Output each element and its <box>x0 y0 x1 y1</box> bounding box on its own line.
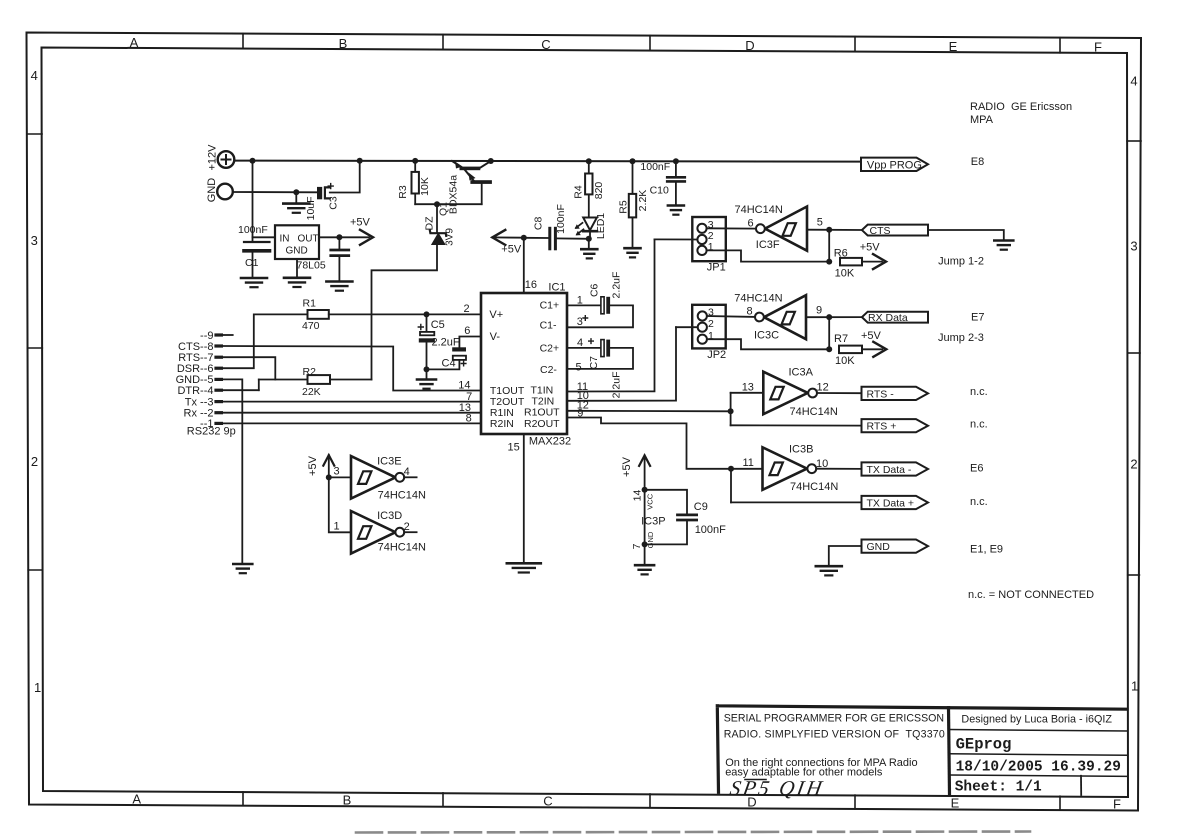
svg-text:IC3F: IC3F <box>756 239 780 251</box>
svg-text:14: 14 <box>458 380 470 392</box>
svg-text:BDX54a: BDX54a <box>448 175 460 214</box>
svg-text:22K: 22K <box>302 386 321 398</box>
svg-text:E6: E6 <box>970 463 983 475</box>
svg-text:74HC14N: 74HC14N <box>790 406 838 418</box>
svg-text:8: 8 <box>747 305 753 317</box>
svg-text:IC3C: IC3C <box>754 330 779 342</box>
svg-text:74HC14N: 74HC14N <box>735 204 783 216</box>
svg-text:C1-: C1- <box>540 320 557 332</box>
svg-text:2: 2 <box>464 303 470 315</box>
svg-text:V-: V- <box>490 331 501 343</box>
svg-text:DZ: DZ <box>424 216 436 231</box>
svg-text:CTS--8: CTS--8 <box>178 341 213 353</box>
svg-text:R4: R4 <box>572 185 584 199</box>
svg-text:C6: C6 <box>589 283 601 297</box>
svg-text:IC3A: IC3A <box>789 367 814 379</box>
svg-text:820: 820 <box>593 182 605 200</box>
svg-text:RTS -: RTS - <box>867 388 895 400</box>
svg-text:IC1: IC1 <box>548 281 565 293</box>
svg-text:+12V: +12V <box>207 144 219 171</box>
svg-text:C: C <box>543 794 552 809</box>
svg-text:3: 3 <box>334 466 340 478</box>
svg-text:RX Data: RX Data <box>868 312 908 324</box>
svg-text:2: 2 <box>1130 457 1137 472</box>
svg-text:JP1: JP1 <box>707 262 726 274</box>
svg-text:6: 6 <box>748 217 754 229</box>
svg-text:IC3B: IC3B <box>789 444 813 456</box>
svg-text:n.c. = NOT CONNECTED: n.c. = NOT CONNECTED <box>968 589 1094 601</box>
svg-text:74HC14N: 74HC14N <box>378 542 426 554</box>
svg-text:R3: R3 <box>397 185 409 199</box>
svg-text:E8: E8 <box>971 156 984 168</box>
svg-text:A: A <box>132 792 141 807</box>
svg-text:2: 2 <box>708 318 714 330</box>
svg-text:n.c.: n.c. <box>970 419 988 431</box>
svg-text:C10: C10 <box>650 185 669 197</box>
svg-text:E7: E7 <box>971 312 984 324</box>
svg-text:1: 1 <box>1131 679 1138 694</box>
svg-text:F: F <box>1094 40 1102 55</box>
svg-text:100nF: 100nF <box>695 524 726 536</box>
svg-text:10K: 10K <box>835 355 855 367</box>
svg-text:VCC: VCC <box>646 493 655 509</box>
svg-text:GEprog: GEprog <box>956 736 1012 754</box>
svg-text:Sheet: 1/1: Sheet: 1/1 <box>955 780 1042 796</box>
svg-text:V+: V+ <box>489 309 503 321</box>
svg-text:IC3P: IC3P <box>641 515 665 527</box>
svg-text:18/10/2005 16.39.29: 18/10/2005 16.39.29 <box>956 759 1121 775</box>
svg-text:2.2uF: 2.2uF <box>432 337 460 349</box>
svg-text:GND: GND <box>867 541 891 553</box>
svg-text:11: 11 <box>743 457 754 469</box>
svg-text:Jump 1-2: Jump 1-2 <box>938 256 984 268</box>
svg-text:R2IN: R2IN <box>490 418 514 430</box>
svg-text:100nF: 100nF <box>238 224 268 236</box>
svg-text:RADIO. SIMPLYFIED VERSION OF: RADIO. SIMPLYFIED VERSION OF TQ3370 <box>724 729 945 741</box>
svg-text:IN: IN <box>280 234 290 245</box>
svg-text:+5V: +5V <box>350 216 371 228</box>
svg-text:78L05: 78L05 <box>297 260 326 272</box>
svg-text:SERIAL PROGRAMMER FOR GE ERICS: SERIAL PROGRAMMER FOR GE ERICSSON <box>724 713 944 725</box>
svg-text:15: 15 <box>508 442 520 454</box>
svg-text:GND: GND <box>646 531 655 548</box>
svg-text:R2: R2 <box>303 366 317 378</box>
svg-text:7: 7 <box>631 543 643 549</box>
svg-text:2: 2 <box>31 454 38 469</box>
svg-text:GND: GND <box>206 178 218 203</box>
svg-text:IC3E: IC3E <box>377 456 401 468</box>
svg-text:10K: 10K <box>835 268 855 280</box>
svg-text:74HC14N: 74HC14N <box>734 292 782 304</box>
svg-text:OUT: OUT <box>298 234 319 245</box>
svg-text:LED1: LED1 <box>595 213 607 239</box>
svg-text:C1: C1 <box>245 257 259 269</box>
svg-text:3: 3 <box>1130 239 1137 254</box>
svg-text:JP2: JP2 <box>707 349 726 361</box>
svg-text:Designed by Luca Boria - i6QIZ: Designed by Luca Boria - i6QIZ <box>961 714 1112 726</box>
svg-text:T1IN: T1IN <box>531 384 554 396</box>
svg-text:MPA: MPA <box>970 114 994 126</box>
svg-text:2.2uF: 2.2uF <box>611 272 623 299</box>
svg-text:13: 13 <box>742 382 754 394</box>
svg-text:8: 8 <box>466 413 472 425</box>
svg-text:16: 16 <box>525 279 537 291</box>
svg-text:9: 9 <box>816 305 822 317</box>
svg-text:Vpp PROG: Vpp PROG <box>867 160 922 172</box>
svg-text:E1, E9: E1, E9 <box>970 544 1003 556</box>
svg-text:+5V: +5V <box>621 456 633 477</box>
svg-text:2.2uF: 2.2uF <box>611 371 623 398</box>
svg-text:470: 470 <box>302 320 320 332</box>
svg-text:DTR--4: DTR--4 <box>177 385 213 397</box>
svg-text:3: 3 <box>31 233 38 248</box>
svg-text:+5V: +5V <box>501 243 522 255</box>
svg-text:1: 1 <box>34 680 41 695</box>
svg-text:1: 1 <box>708 241 714 253</box>
svg-text:5: 5 <box>817 216 823 228</box>
svg-text:GND: GND <box>286 246 308 257</box>
svg-text:C8: C8 <box>532 217 544 231</box>
svg-text:E: E <box>949 39 958 54</box>
svg-text:Jump 2-3: Jump 2-3 <box>938 332 984 344</box>
svg-text:5: 5 <box>576 362 582 374</box>
svg-text:B: B <box>339 36 348 51</box>
svg-text:R7: R7 <box>834 333 848 345</box>
svg-text:E: E <box>951 796 960 811</box>
svg-text:100nF: 100nF <box>555 204 567 234</box>
svg-text:6: 6 <box>464 325 470 337</box>
svg-text:10uF: 10uF <box>305 196 317 220</box>
svg-text:F: F <box>1113 797 1121 812</box>
svg-text:R6: R6 <box>834 247 848 259</box>
svg-text:RADIO GE Ericsson: RADIO GE Ericsson <box>970 101 1072 113</box>
svg-text:R2OUT: R2OUT <box>524 418 560 430</box>
svg-text:n.c.: n.c. <box>970 496 988 508</box>
svg-text:C5: C5 <box>431 319 445 331</box>
svg-text:R5: R5 <box>618 200 630 214</box>
svg-text:C7: C7 <box>588 356 600 370</box>
svg-text:+5V: +5V <box>861 330 882 342</box>
svg-text:74HC14N: 74HC14N <box>790 481 838 493</box>
svg-text:RTS +: RTS + <box>867 421 897 433</box>
svg-text:C3: C3 <box>327 196 339 210</box>
svg-text:D: D <box>745 38 754 53</box>
svg-text:12: 12 <box>817 382 829 394</box>
svg-text:4: 4 <box>31 68 38 83</box>
svg-text:C2+: C2+ <box>540 342 560 354</box>
svg-text:14: 14 <box>632 490 644 502</box>
svg-text:C9: C9 <box>694 501 708 513</box>
svg-text:3V9: 3V9 <box>445 228 456 246</box>
svg-text:C1+: C1+ <box>540 299 560 311</box>
svg-text:C4: C4 <box>442 357 456 369</box>
svg-text:R1: R1 <box>303 297 317 309</box>
svg-text:2.2K: 2.2K <box>637 190 649 212</box>
svg-text:RS232 9p: RS232 9p <box>187 426 236 438</box>
svg-text:+5V: +5V <box>860 242 881 254</box>
svg-text:100nF: 100nF <box>640 161 670 173</box>
svg-text:B: B <box>343 793 352 808</box>
svg-text:A: A <box>130 35 139 50</box>
svg-text:74HC14N: 74HC14N <box>378 490 426 502</box>
svg-text:TX Data -: TX Data - <box>867 464 912 476</box>
svg-text:TX Data +: TX Data + <box>867 498 915 510</box>
svg-text:3: 3 <box>577 316 583 328</box>
svg-text:1: 1 <box>334 521 340 533</box>
svg-text:C2-: C2- <box>540 364 557 376</box>
svg-text:C: C <box>541 37 550 52</box>
svg-text:+5V: +5V <box>307 455 319 476</box>
svg-text:2: 2 <box>404 521 410 533</box>
svg-text:CTS: CTS <box>870 225 891 237</box>
svg-text:4: 4 <box>404 466 410 478</box>
svg-text:SP5 QIH: SP5 QIH <box>728 776 826 800</box>
svg-text:MAX232: MAX232 <box>529 436 571 448</box>
svg-text:DSR--6: DSR--6 <box>177 363 214 375</box>
svg-text:IC3D: IC3D <box>377 510 402 522</box>
svg-text:10K: 10K <box>419 177 431 196</box>
svg-text:4: 4 <box>1130 74 1137 89</box>
svg-text:7: 7 <box>466 391 472 403</box>
svg-text:n.c.: n.c. <box>970 386 988 398</box>
